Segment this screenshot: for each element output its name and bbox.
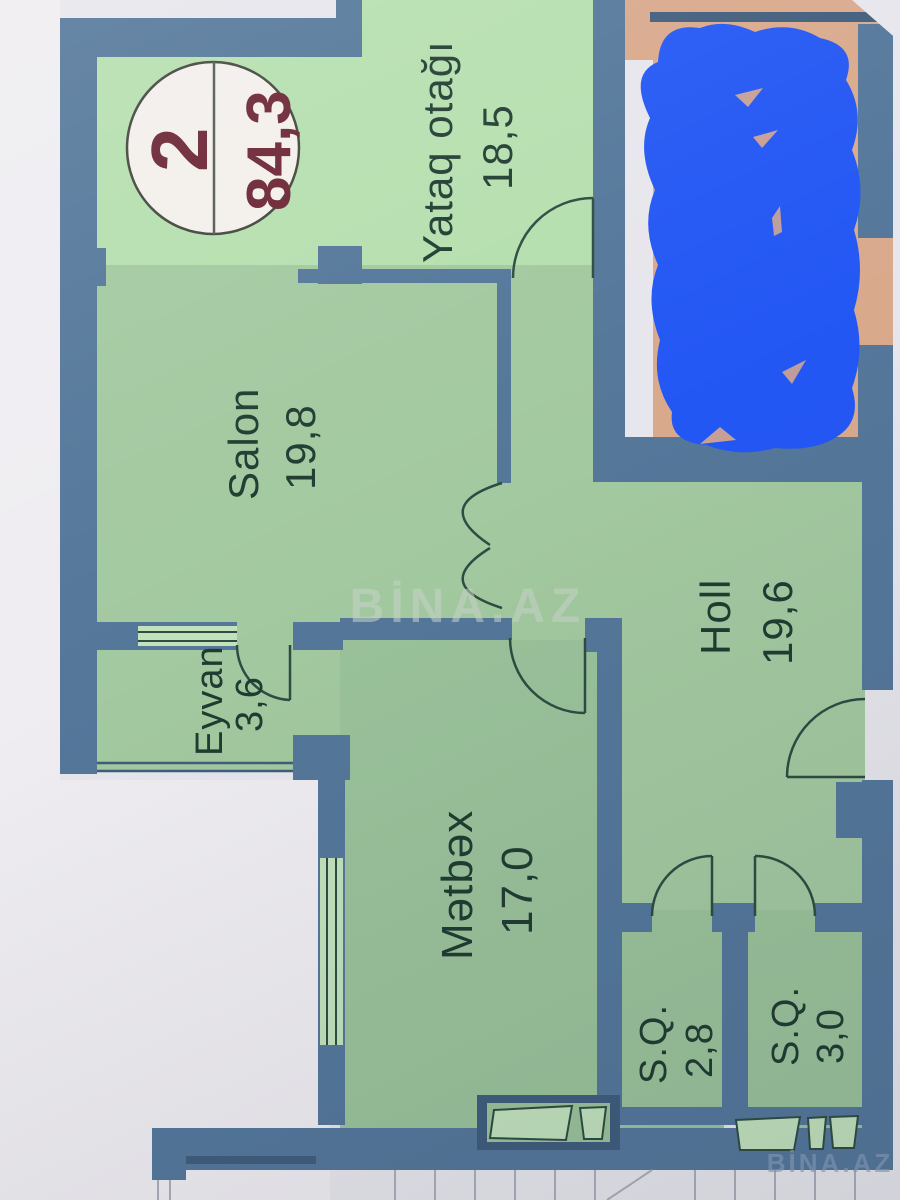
wall-yataq-east <box>593 0 625 482</box>
vent-trapezoid-1 <box>490 1106 572 1140</box>
badge-unit-number: 2 <box>135 128 224 173</box>
wall-right-lower <box>862 780 893 1170</box>
paper-left-margin <box>0 0 60 780</box>
label-holl-area: 19,6 <box>754 579 801 665</box>
wall-metbex-holl <box>597 618 622 1125</box>
wall-top <box>60 18 360 57</box>
label-eyvan-name: Eyvan <box>189 645 231 756</box>
wall-neighbour-east-upper <box>858 24 893 238</box>
watermark-center: BİNA.AZ <box>350 580 587 633</box>
marker-scribble <box>641 24 861 453</box>
wall-right-upper <box>862 445 893 690</box>
label-yataq-otagi-area: 18,5 <box>474 104 521 190</box>
vent-trapezoid-4 <box>808 1117 826 1149</box>
badge-total-area: 84,3 <box>235 90 304 211</box>
label-sq2-area: 3,0 <box>810 1008 852 1064</box>
wall-sq-top-1 <box>622 903 652 932</box>
label-sq1-area: 2,8 <box>679 1022 721 1078</box>
eyvan-window <box>138 626 237 646</box>
vent-trapezoid-5 <box>830 1116 858 1148</box>
wall-left-outer <box>60 18 97 774</box>
label-sq1-name: S.Q. <box>633 1004 675 1084</box>
label-salon-area: 19,8 <box>277 404 324 490</box>
room-yataq-otagi-floor-top <box>345 0 593 30</box>
watermark-corner: BİNA.AZ <box>767 1148 893 1178</box>
label-sq2-name: S.Q. <box>765 986 807 1066</box>
wall-top-stub <box>336 0 362 57</box>
label-metbex-area: 17,0 <box>493 845 542 935</box>
scribble-group <box>641 24 861 453</box>
wall-eyvan-stub-left <box>60 740 97 774</box>
floorplan-svg: 2 84,3 Yataq otağı 18,5 Salon 19,8 Holl … <box>0 0 900 1200</box>
label-yataq-otagi-name: Yataq otağı <box>414 40 461 263</box>
wall-entrance-block <box>836 782 893 838</box>
wall-bottom-band-step <box>152 1128 186 1180</box>
wall-salon-holl <box>497 269 511 483</box>
label-salon-name: Salon <box>220 388 267 500</box>
wall-sq-divider <box>722 903 748 1125</box>
wall-yataq-salon <box>298 269 500 283</box>
wall-stub-a <box>72 248 106 286</box>
neighbour-top-wall <box>650 12 893 22</box>
label-holl-name: Holl <box>692 579 739 655</box>
wall-bottom-underline <box>186 1156 316 1164</box>
floorplan-photo: 2 84,3 Yataq otağı 18,5 Salon 19,8 Holl … <box>0 0 900 1200</box>
label-metbex-name: Mətbəx <box>433 810 482 960</box>
vent-trapezoid-3 <box>736 1117 800 1150</box>
eyvan-door-opening <box>237 622 293 650</box>
label-eyvan-area: 3,6 <box>229 676 271 732</box>
wall-sq-top-3 <box>815 903 862 932</box>
metbex-window <box>320 858 343 1045</box>
vent-trapezoid-2 <box>580 1107 606 1139</box>
